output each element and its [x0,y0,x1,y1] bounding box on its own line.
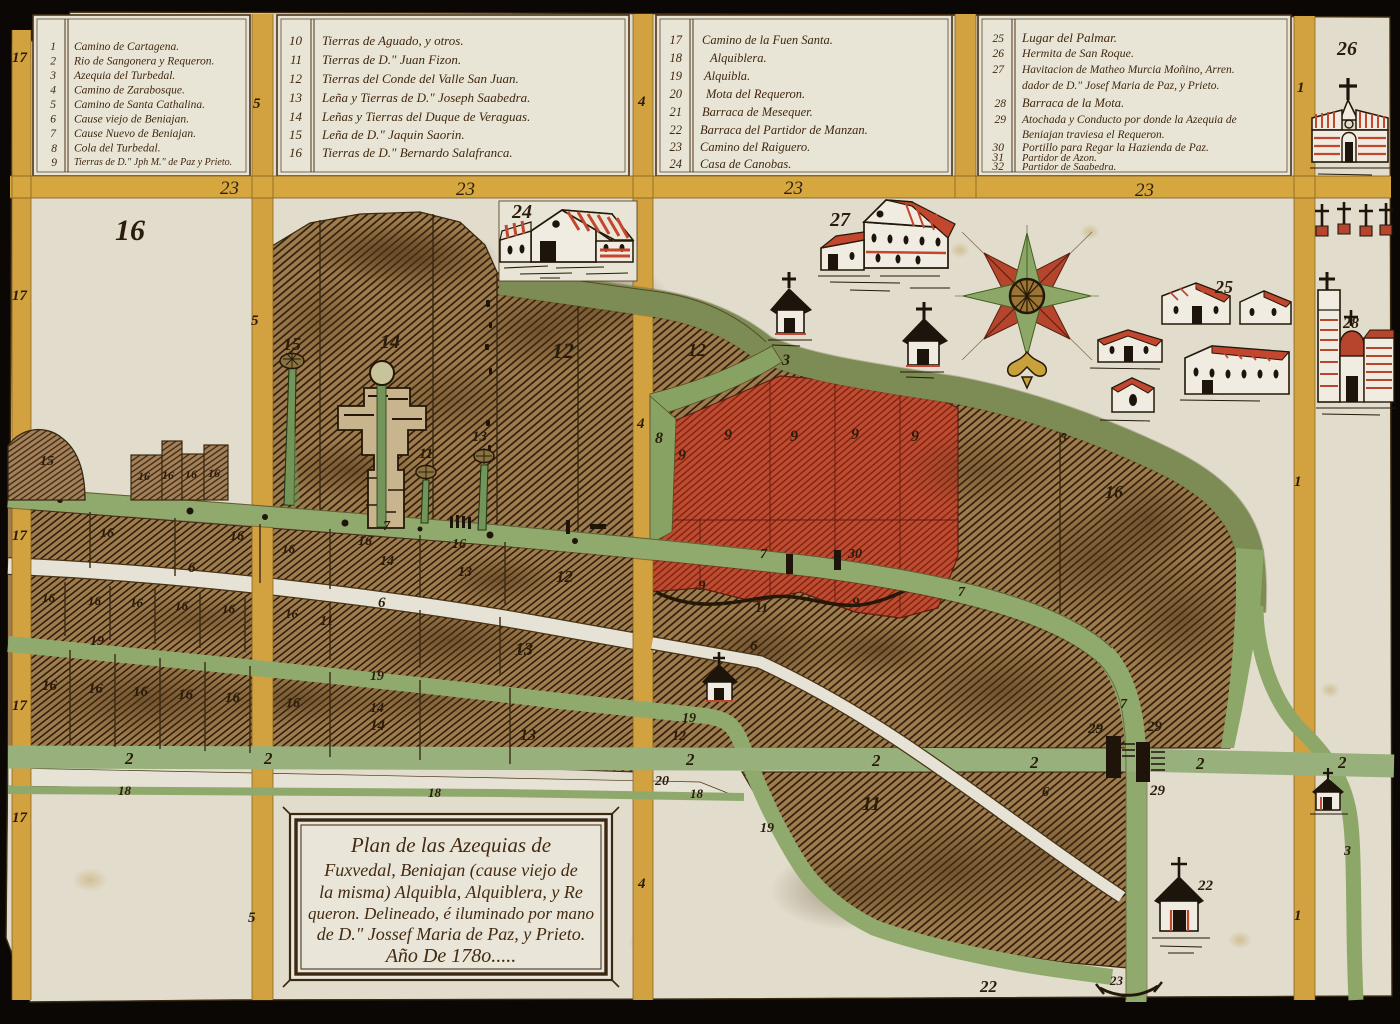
svg-text:19: 19 [370,669,384,684]
svg-text:5: 5 [248,910,256,926]
svg-text:14: 14 [370,701,384,716]
svg-text:5: 5 [253,96,261,112]
svg-text:Cause viejo de Beniajan.: Cause viejo de Beniajan. [74,114,189,126]
svg-text:17: 17 [670,33,683,47]
svg-text:Camino de Zarabosque.: Camino de Zarabosque. [74,85,185,97]
svg-text:23: 23 [1109,973,1124,988]
svg-text:4: 4 [636,416,645,432]
svg-text:4: 4 [637,876,646,892]
svg-text:Partidor de Saabedra.: Partidor de Saabedra. [1021,162,1116,173]
svg-text:Casa de Canobas.: Casa de Canobas. [700,157,791,171]
svg-text:2: 2 [871,751,881,770]
svg-text:14: 14 [380,331,400,353]
svg-text:26: 26 [1336,38,1357,60]
svg-text:5: 5 [50,99,56,111]
svg-text:19: 19 [670,69,683,83]
svg-text:27: 27 [993,64,1006,76]
svg-text:16: 16 [133,684,149,700]
svg-text:queron. Delineado, é iluminado: queron. Delineado, é iluminado por mano [308,904,594,923]
svg-text:20: 20 [654,774,669,789]
svg-text:18: 18 [428,785,442,800]
svg-text:3: 3 [1059,431,1067,446]
svg-text:12: 12 [672,729,686,744]
svg-text:13: 13 [289,90,303,105]
svg-text:20: 20 [670,87,683,101]
svg-text:16: 16 [286,696,300,711]
svg-text:2: 2 [50,56,56,68]
svg-text:19: 19 [760,821,774,836]
svg-text:16: 16 [175,598,189,613]
svg-text:28: 28 [1342,315,1359,332]
svg-text:Alquiblera.: Alquiblera. [709,51,767,65]
svg-text:23: 23 [670,140,683,154]
svg-text:la misma) Alquibla, Alquiblera: la misma) Alquibla, Alquiblera, y Re [319,882,583,903]
svg-text:16: 16 [452,537,466,552]
svg-text:4: 4 [50,85,56,97]
svg-text:1: 1 [1294,474,1302,490]
svg-text:3: 3 [1343,844,1351,859]
svg-text:17: 17 [12,810,28,826]
svg-text:3: 3 [781,352,790,369]
svg-text:30: 30 [847,547,862,562]
svg-text:Barraca de Mesequer.: Barraca de Mesequer. [702,105,813,119]
svg-text:Atochada y Conducto por donde: Atochada y Conducto por donde la Azequia… [1021,114,1237,126]
svg-text:16: 16 [185,467,197,481]
svg-text:1: 1 [50,41,56,53]
svg-text:7: 7 [958,585,966,600]
svg-text:17: 17 [12,698,28,714]
svg-text:14: 14 [289,109,303,124]
svg-text:29: 29 [1149,783,1166,799]
svg-text:12: 12 [552,338,574,363]
svg-text:6: 6 [750,638,758,654]
svg-text:27: 27 [829,209,851,231]
svg-text:25: 25 [1214,277,1233,297]
svg-text:16: 16 [225,690,241,706]
svg-text:11: 11 [419,446,433,462]
svg-text:2: 2 [685,750,695,769]
svg-text:9: 9 [852,595,860,611]
svg-text:15: 15 [283,334,301,354]
svg-text:11: 11 [290,52,302,67]
svg-text:6: 6 [188,560,196,576]
svg-text:11: 11 [755,601,768,616]
svg-text:Tierras de D." Juan Fizon.: Tierras de D." Juan Fizon. [322,52,461,67]
svg-text:2: 2 [1195,754,1205,773]
svg-text:Barraca de la Mota.: Barraca de la Mota. [1022,96,1124,110]
svg-text:18: 18 [670,51,683,65]
svg-text:25: 25 [993,33,1005,45]
svg-text:Camino de Cartagena.: Camino de Cartagena. [74,41,179,53]
svg-text:26: 26 [993,48,1005,60]
svg-text:22: 22 [1197,878,1214,894]
svg-text:9: 9 [790,428,798,445]
svg-text:14: 14 [370,718,386,734]
svg-text:9: 9 [851,426,859,443]
svg-text:16: 16 [178,687,194,703]
svg-text:3: 3 [49,70,56,82]
svg-text:23: 23 [784,178,803,199]
svg-text:6: 6 [1042,785,1049,800]
svg-text:1: 1 [1294,908,1302,924]
svg-text:11: 11 [320,614,333,629]
svg-text:9: 9 [51,157,57,169]
svg-text:16: 16 [100,526,114,541]
svg-text:14: 14 [380,554,394,569]
svg-text:Havitacion de Matheo Murcia Mo: Havitacion de Matheo Murcia Moñino, Arre… [1021,64,1235,76]
svg-text:16: 16 [1105,482,1123,502]
svg-text:16: 16 [289,145,303,160]
svg-text:23: 23 [456,179,475,200]
svg-text:29: 29 [995,114,1007,126]
svg-text:2: 2 [263,749,273,768]
svg-text:21: 21 [670,105,683,119]
svg-text:4: 4 [637,94,646,110]
svg-text:15: 15 [40,454,54,469]
svg-text:8: 8 [51,143,57,155]
svg-text:Año De 178o.....: Año De 178o..... [384,945,517,967]
svg-text:1: 1 [1297,80,1305,96]
svg-text:28: 28 [995,98,1007,110]
svg-text:Camino de la Fuen Santa.: Camino de la Fuen Santa. [702,33,833,47]
svg-text:16: 16 [282,541,296,556]
svg-text:2: 2 [1337,753,1347,772]
svg-text:13: 13 [458,565,472,580]
svg-text:16: 16 [88,593,102,608]
svg-text:Plan de las Azequias de: Plan de las Azequias de [350,833,551,857]
svg-text:16: 16 [115,214,145,247]
svg-text:Barraca del Partidor de Manzan: Barraca del Partidor de Manzan. [700,123,868,137]
svg-text:de D." Jossef Maria de Paz, y: de D." Jossef Maria de Paz, y Prieto. [317,924,586,944]
svg-text:12: 12 [289,71,303,86]
svg-text:9: 9 [698,578,706,594]
svg-text:9: 9 [678,447,686,464]
svg-text:7: 7 [1120,697,1128,712]
svg-text:2: 2 [124,749,134,768]
svg-text:19: 19 [682,711,696,726]
svg-text:29: 29 [1146,719,1163,735]
svg-text:29: 29 [1087,721,1104,737]
svg-text:16: 16 [130,595,144,610]
svg-text:8: 8 [655,430,663,447]
svg-text:19: 19 [90,634,104,649]
svg-text:10: 10 [289,33,303,48]
svg-text:dador de D." Josef Maria de Pa: dador de D." Josef Maria de Paz, y Priet… [1022,80,1219,92]
svg-text:16: 16 [358,534,372,549]
svg-text:16: 16 [42,590,56,605]
svg-text:17: 17 [12,50,28,66]
svg-text:12: 12 [688,340,706,360]
svg-text:23: 23 [1135,180,1154,201]
svg-text:Alquibla.: Alquibla. [703,69,750,83]
svg-text:16: 16 [88,681,104,697]
svg-text:16: 16 [42,678,58,694]
svg-text:9: 9 [724,427,732,444]
svg-text:Tierras de Aguado, y otros.: Tierras de Aguado, y otros. [322,33,464,48]
svg-text:12: 12 [556,567,574,586]
svg-text:Beniajan traviesa el Requeron.: Beniajan traviesa el Requeron. [1022,129,1165,141]
svg-text:Mota del Requeron.: Mota del Requeron. [705,87,805,101]
svg-text:6: 6 [378,595,386,611]
svg-text:Fuxvedal, Beniajan (cause viej: Fuxvedal, Beniajan (cause viejo de [323,860,577,881]
svg-text:16: 16 [230,529,244,544]
svg-text:Camino de Santa Cathalina.: Camino de Santa Cathalina. [74,99,205,111]
svg-text:16: 16 [222,601,236,616]
svg-text:11: 11 [862,793,881,815]
svg-text:Hermita de San Roque.: Hermita de San Roque. [1021,46,1134,60]
svg-text:23: 23 [220,178,239,199]
svg-text:Camino del Raiguero.: Camino del Raiguero. [700,140,810,154]
svg-text:17: 17 [12,288,28,304]
svg-text:Leña de D." Jaquin Saorin.: Leña de D." Jaquin Saorin. [321,127,465,142]
svg-text:18: 18 [690,786,704,801]
svg-text:6: 6 [50,114,56,126]
svg-text:17: 17 [12,528,28,544]
svg-text:15: 15 [289,127,303,142]
svg-text:Tierras de D." Bernardo Salafr: Tierras de D." Bernardo Salafranca. [322,145,513,160]
svg-text:32: 32 [992,161,1005,173]
svg-text:16: 16 [138,469,150,483]
svg-text:Leña y Tierras de D." Joseph S: Leña y Tierras de D." Joseph Saabedra. [321,90,530,105]
svg-text:16: 16 [162,468,174,482]
svg-text:9: 9 [911,428,919,445]
svg-text:2: 2 [1029,753,1039,772]
svg-text:Azequia del Turbedal.: Azequia del Turbedal. [73,70,175,82]
svg-text:Leñas y Tierras del Duque de V: Leñas y Tierras del Duque de Veraguas. [321,109,530,124]
svg-text:Tierras de D." Jph M." de Paz: Tierras de D." Jph M." de Paz y Prieto. [74,157,232,168]
svg-text:Cause Nuevo de Beniajan.: Cause Nuevo de Beniajan. [74,128,196,140]
svg-text:Rio de Sangonera y Requeron.: Rio de Sangonera y Requeron. [73,56,214,68]
svg-text:Cola del Turbedal.: Cola del Turbedal. [74,143,161,155]
svg-text:Lugar del Palmar.: Lugar del Palmar. [1021,30,1117,45]
svg-text:7: 7 [760,547,768,562]
svg-text:13: 13 [520,727,536,744]
svg-text:13: 13 [472,429,488,445]
svg-text:16: 16 [285,606,299,621]
svg-text:7: 7 [383,519,391,534]
svg-text:24: 24 [511,201,532,223]
svg-text:18: 18 [118,783,132,798]
svg-text:13: 13 [515,639,533,659]
svg-text:5: 5 [251,313,259,329]
svg-text:24: 24 [670,157,683,171]
svg-text:16: 16 [208,466,220,480]
svg-text:22: 22 [670,123,683,137]
svg-text:22: 22 [979,977,998,996]
svg-text:Tierras del Conde del Valle Sa: Tierras del Conde del Valle San Juan. [322,71,519,86]
